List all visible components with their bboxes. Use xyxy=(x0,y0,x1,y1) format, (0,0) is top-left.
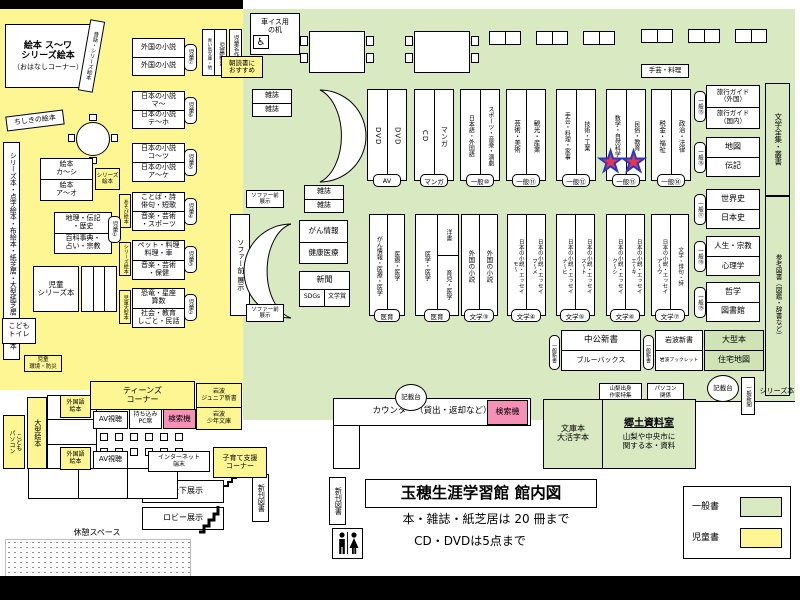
iwanami-youth-bunko: 岩波 少年文庫 xyxy=(196,407,242,430)
chair xyxy=(471,53,479,63)
kids-shelf-tag-1: 児童① xyxy=(108,216,121,243)
restroom-box xyxy=(332,528,363,559)
ohanashi-line2: シリーズ絵本 xyxy=(21,51,75,61)
picture-book-ohanashi-corner: 絵本 ス～ワ シリーズ絵本 （おはなしコーナー） xyxy=(5,24,91,88)
shelf-tag-iiku: 医育 xyxy=(424,309,450,322)
magazine-rack: 雑誌雑誌 xyxy=(304,185,344,213)
childcare-support-corner: 子育て支援 コーナー xyxy=(213,447,267,478)
kids-toilet: こども トイレ xyxy=(2,318,36,344)
shelf-tag-iiku: 医育 xyxy=(374,309,400,322)
chair xyxy=(68,134,75,142)
chair xyxy=(300,36,308,46)
chair xyxy=(300,53,308,63)
shelf-tag-bungaku-4: 文学④ xyxy=(511,309,541,322)
study-desk-pair xyxy=(583,31,615,45)
legend-general-label: 一般書 xyxy=(692,502,719,512)
shelf-language-sports: 日本語・外国語スポーツ・音楽・演劇 xyxy=(460,89,500,181)
kids-series-books-box: 児童 シリーズ本 xyxy=(33,266,79,312)
iwanami-shinsho-shelf: 岩波新書 岩波ブックレット xyxy=(655,330,703,371)
av-viewing-seat[interactable]: AV視聴 xyxy=(93,411,128,429)
sdgs-cell: SDGs xyxy=(300,290,324,307)
general-newspaper-rack: 一般新聞 xyxy=(741,377,755,415)
chair xyxy=(130,448,138,456)
shelf-tag-general-18: 一般⑱ xyxy=(694,241,706,272)
kids-shelf-language-arts: ことば・詩 俳句・短歌音楽・芸術 ・スポーツ xyxy=(132,192,185,231)
new-books-rack: 新刊図書 xyxy=(252,474,269,522)
star-marker-icon: ★ xyxy=(621,148,646,176)
chair xyxy=(175,433,183,441)
shelf-tag-general-12: 一般⑫ xyxy=(562,174,590,187)
bottom-frame-bar xyxy=(0,576,800,600)
shelf-tag-bungaku-7: 文学⑦ xyxy=(655,309,685,322)
chair xyxy=(115,433,123,441)
sofa-front-display-sign: ソファー前 展示 xyxy=(246,190,284,208)
reading-table xyxy=(414,31,470,73)
legend-box: 一般書 児童書 xyxy=(683,486,791,559)
shelf-tax-politics: 税金・福祉政治・法律 xyxy=(651,89,691,181)
shelf-jp-novels-mo: 日本の小説・エッセイ モ～日本の小説・エッセイ フ～メ xyxy=(507,214,546,316)
kids-shelf-jp-novels-ma: 日本の小説 マ～日本の小説 テ～ホ xyxy=(132,91,185,129)
picture-books-ka-shi-shelf: 絵本 カ～シ絵本 ア～オ xyxy=(40,158,93,201)
lending-rule-1: 本・雑誌・紙芝居は 20 冊まで xyxy=(375,509,597,527)
shelf-tag-general-15: 一般⑮ xyxy=(694,91,706,122)
chair-row xyxy=(100,433,190,441)
kids-shelf-tag-5: 児童⑤ xyxy=(184,149,197,176)
shelf-jp-novels-na: 日本の小説・エッセイ ナ～ヒ日本の小説・エッセイ ス～ト xyxy=(556,214,595,316)
writing-stand: 記載台 xyxy=(395,384,427,411)
shelf-tag-general-17: 一般⑰ xyxy=(694,194,706,225)
chair xyxy=(145,433,153,441)
legend-general-swatch xyxy=(740,497,782,517)
shelf-foreign-novels: 外国の小説外国の小説 xyxy=(461,214,498,316)
shelf-maps-biographies: 地図伝記 xyxy=(706,137,760,177)
bungakusho-cell: 文学賞 xyxy=(324,290,349,307)
legend-children-label: 児童書 xyxy=(692,533,719,543)
map-canvas: 絵本 ス～ワ シリーズ絵本 （おはなしコーナー） 昔話・シリーズ絵本 ちしきの絵… xyxy=(0,0,800,576)
shelf-dvd: DVDDVD xyxy=(367,89,407,181)
cancer-info-health-box: がん情報健康医療 xyxy=(299,220,348,264)
chair xyxy=(405,53,413,63)
large-picture-books-rack: 大型絵本 xyxy=(27,397,47,469)
ohanashi-line1: 絵本 ス～ワ xyxy=(24,41,72,51)
study-desk-pair xyxy=(489,31,521,45)
shelf-medicine-western-books: 医学・医学 洋書 育児・医学 xyxy=(415,214,459,316)
kids-shelf-tag-7: 児童⑦ xyxy=(184,44,197,71)
byod-pc-seat[interactable]: 持ち込み PC席 xyxy=(129,409,162,429)
legend-row-general: 一般書 xyxy=(692,497,782,517)
stairs-icon xyxy=(197,504,219,534)
kids-shelf-tag-3: 児童③ xyxy=(184,246,197,273)
kids-shelf-tag-4: 児童④ xyxy=(184,198,197,225)
restroom-icon xyxy=(334,531,361,556)
chair xyxy=(366,53,374,63)
rest-space-label: 休憩スペース xyxy=(64,526,130,539)
kids-shelf-geography-reference: 地理・伝記 ・歴史百科事典・ 占い・宗教 xyxy=(54,212,112,254)
shelf-life-religion-psychology: 人生・宗教心理学 xyxy=(706,236,760,276)
kids-computer: こども パソコン xyxy=(3,415,25,469)
new-books-rack: 新刊図書 xyxy=(329,477,346,525)
shinsho-tag: 一般新書 xyxy=(549,335,560,370)
legend-children-swatch xyxy=(740,528,782,548)
shelf-world-japan-history: 世界史日本史 xyxy=(706,189,760,229)
local-history-room-title: 郷土資料室 xyxy=(624,418,674,429)
work-table xyxy=(28,468,178,499)
chair xyxy=(89,114,97,121)
shelf-tag-general-10: 一般⑩ xyxy=(466,174,494,187)
shelf-cancer-medical: がん情報・医療・医学医療・医学 xyxy=(369,214,405,316)
paperback-large-print-area: 文庫本 大活字本 xyxy=(543,399,603,469)
search-machine[interactable]: 検索機 xyxy=(487,400,528,425)
reference-books-strip: 参考図書（図鑑・辞書など） xyxy=(765,196,790,396)
newspaper-sdgs-box: 新聞 SDGs 文学賞 xyxy=(299,271,350,307)
study-desk-pair xyxy=(641,29,673,43)
internet-terminal[interactable]: インターネット 端末 xyxy=(148,451,210,472)
top-frame-bar xyxy=(0,0,243,9)
shelf-tag-bungaku-6: 文学⑥ xyxy=(610,309,640,322)
chair xyxy=(366,36,374,46)
chuko-shinsho-shelf: 中公新書 ブルーバックス xyxy=(561,330,641,371)
teens-corner: ティーンズ コーナー xyxy=(90,381,195,410)
yosho-cell: 洋書 xyxy=(438,215,459,255)
series-ehon-side-tag: シリーズ絵本 xyxy=(119,242,131,276)
ikuji-cell: 育児・医学 xyxy=(438,255,459,315)
shelf-travel-guides: 旅行ガイド （外国）旅行ガイド （国内） xyxy=(706,85,760,129)
shelf-tag-general-14: 一般⑭ xyxy=(657,174,685,187)
series-books-label: シリーズ本 xyxy=(757,384,797,398)
shelf-cd-manga: CDマンガ xyxy=(414,89,454,181)
kids-shelf-tag-2: 児童② xyxy=(184,294,197,321)
shelf-jp-novels-ku: 日本の小説・エッセイ ク～シ日本の小説・エッセイ エ～キ xyxy=(606,214,645,316)
chair xyxy=(160,433,168,441)
series-ehon-tag: シリーズ 絵本 xyxy=(95,168,120,190)
kids-shelf-pets-cooking: ペット・料理 料理・車音楽・芸術 ・保健 xyxy=(132,240,185,280)
writing-stand: 記載台 xyxy=(707,375,739,402)
shelf-tag-general-19: 一般⑲ xyxy=(694,287,706,318)
kids-environment-disaster-box: 児童 環境・防災 xyxy=(24,355,62,372)
literature-collection-strip: 文学全集・叢書 xyxy=(765,83,790,196)
kids-shelf-dino-society: 恐竜・星座 算数社会・教育 しごと・民話 xyxy=(132,288,185,328)
shelf-large-books-housing-maps: 大型本住宅地図 xyxy=(704,330,764,371)
iwanami-junior-shinsho: 岩波 ジュニア新書 xyxy=(196,383,242,408)
craft-cooking-note: 手芸・料理 xyxy=(641,64,689,78)
search-machine[interactable]: 検索機 xyxy=(163,409,196,429)
foreign-language-picture-books: 外国語 絵本 xyxy=(60,395,91,418)
morning-reading-recommendation: 朝読書に おすすめ xyxy=(221,56,263,78)
local-history-room: 郷土資料室 山梨や中央市に 関する本・資料 xyxy=(602,399,696,469)
map-title: 玉穂生涯学習館 館内図 xyxy=(365,479,597,508)
kids-shelf-tag-6: 児童⑥ xyxy=(184,97,197,124)
shelf-tag-av: AV xyxy=(373,174,401,187)
chair xyxy=(471,36,479,46)
shinsho-tag: 一般新書 xyxy=(643,335,654,370)
study-desk-pair xyxy=(735,29,767,43)
sofa-crescent xyxy=(306,86,366,186)
kids-large-book-side-tag: 児童大型本 xyxy=(119,290,131,324)
kids-shelf-jp-novels-ko: 日本の小説 コ～ツ日本の小説 ア～ケ xyxy=(132,143,185,182)
wheelchair-icon: ♿ xyxy=(253,35,269,49)
shelf-tag-manga: マンガ xyxy=(420,174,448,187)
shelf-philosophy-library: 哲学図書館 xyxy=(706,282,760,322)
shelf-craft-technology: 手芸・料理・家事技術・工業 xyxy=(556,89,596,181)
kids-shelf-unit xyxy=(81,266,117,312)
shelf-art-tourism: 芸術・美術観光・産業 xyxy=(506,89,546,181)
shelf-tag-bungaku-3: 文学③ xyxy=(464,309,494,322)
foreign-language-picture-books: 外国語 絵本 xyxy=(60,447,91,470)
local-history-room-desc: 山梨や中央市に 関する本・資料 xyxy=(623,433,676,450)
wheelchair-desk: 車イス用 の机 ♿ xyxy=(250,13,300,55)
chair xyxy=(111,134,118,142)
library-floor-map: { "colors": { "general_zone": "#d9eac3",… xyxy=(0,0,800,600)
shelf-tag-general-11: 一般⑪ xyxy=(512,174,540,187)
round-table xyxy=(76,122,110,156)
chair xyxy=(130,433,138,441)
magazine-rack: 雑誌雑誌 xyxy=(252,89,292,117)
av-viewing-seat[interactable]: AV視聴 xyxy=(93,451,128,469)
kids-shelf-foreign-novels: 外国の小説外国の小説 xyxy=(132,38,185,76)
study-desk-pair xyxy=(688,29,720,43)
service-counter-leg xyxy=(333,425,360,469)
ohanashi-line3: （おはなしコーナー） xyxy=(13,64,83,72)
shelf-jp-novels-a-poetry: 日本の小説・エッセイ ア～ウ文学・俳句・詩 xyxy=(651,214,689,316)
lending-rule-2: CD・DVDは5点まで xyxy=(370,531,570,549)
shelf-tag-general-16: 一般⑯ xyxy=(694,142,706,173)
chair xyxy=(405,36,413,46)
star-marker-icon: ★ xyxy=(598,148,623,176)
reading-table xyxy=(309,31,365,73)
legend-row-children: 児童書 xyxy=(692,528,782,548)
chair xyxy=(100,433,108,441)
study-desk-pair xyxy=(536,31,568,45)
shelf-tag-bungaku-5: 文学⑤ xyxy=(560,309,590,322)
sofa-front-display-sign: ソファー前 展示 xyxy=(246,304,284,322)
rest-space-area xyxy=(5,539,191,577)
